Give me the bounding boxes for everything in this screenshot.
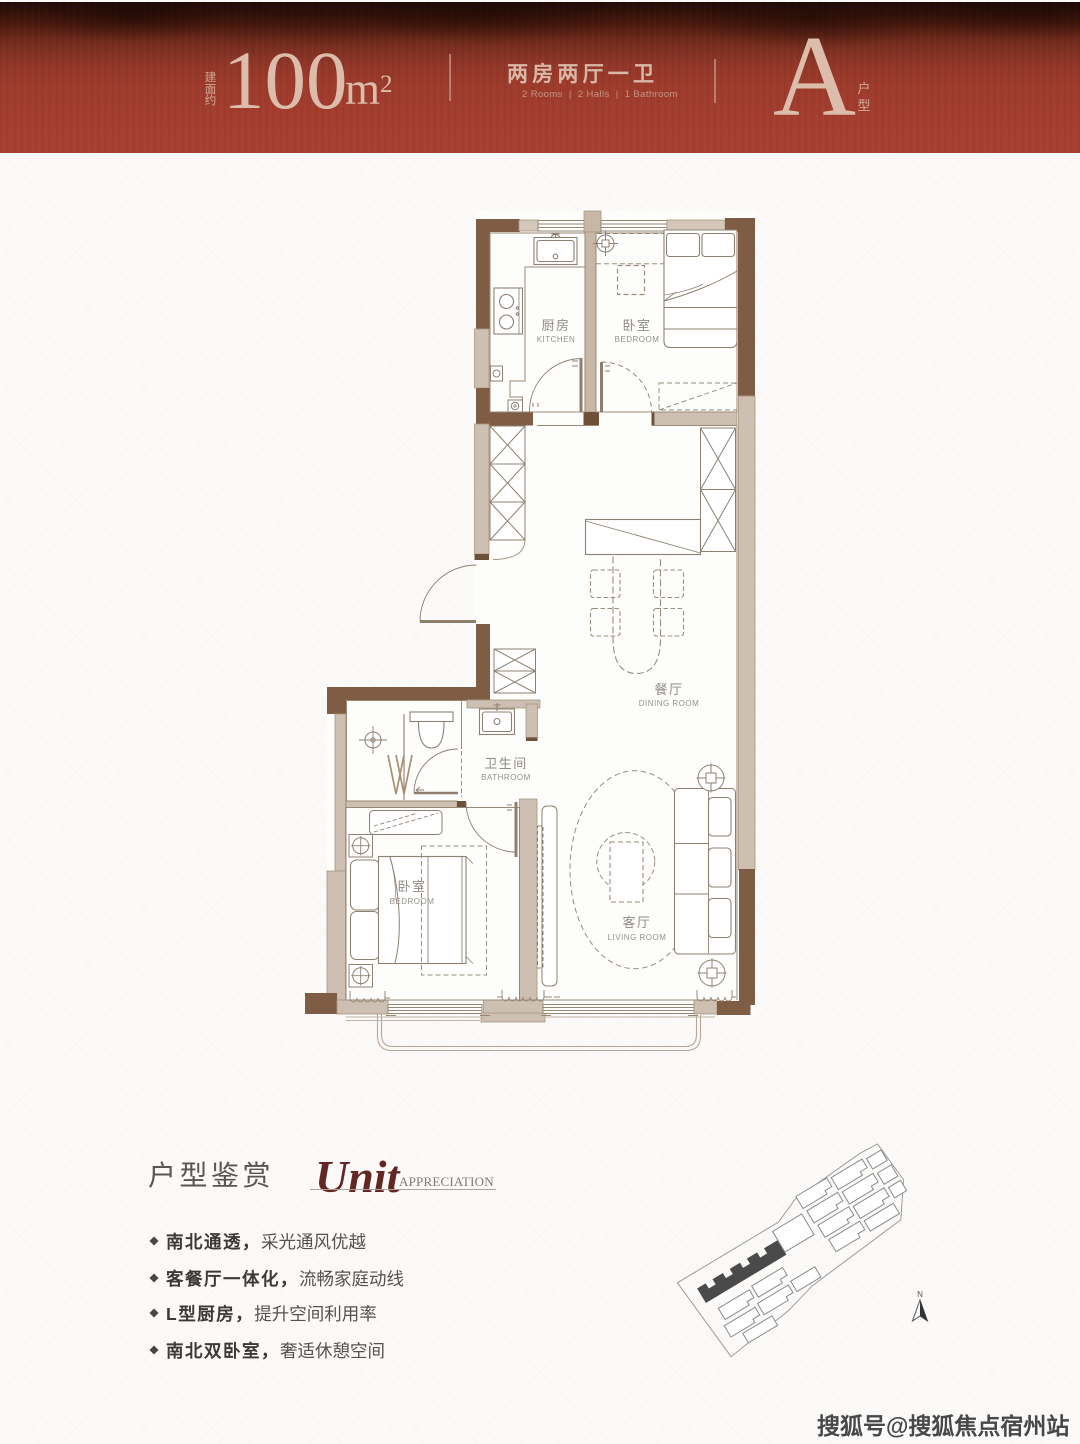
svg-text:LIVING ROOM: LIVING ROOM [608,933,667,942]
svg-text:客厅: 客厅 [622,915,651,930]
svg-text:BATHROOM: BATHROOM [481,773,531,782]
svg-text:BEDROOM: BEDROOM [615,335,660,344]
svg-text:卫生间: 卫生间 [484,756,528,771]
svg-text:卧室: 卧室 [397,879,426,894]
svg-text:BEDROOM: BEDROOM [390,897,435,906]
svg-text:餐厅: 餐厅 [654,682,683,697]
svg-text:卧室: 卧室 [622,318,651,333]
svg-text:N: N [917,1290,923,1299]
svg-text:DINING ROOM: DINING ROOM [639,699,700,708]
svg-text:厨房: 厨房 [541,318,570,333]
svg-text:KITCHEN: KITCHEN [537,335,576,344]
